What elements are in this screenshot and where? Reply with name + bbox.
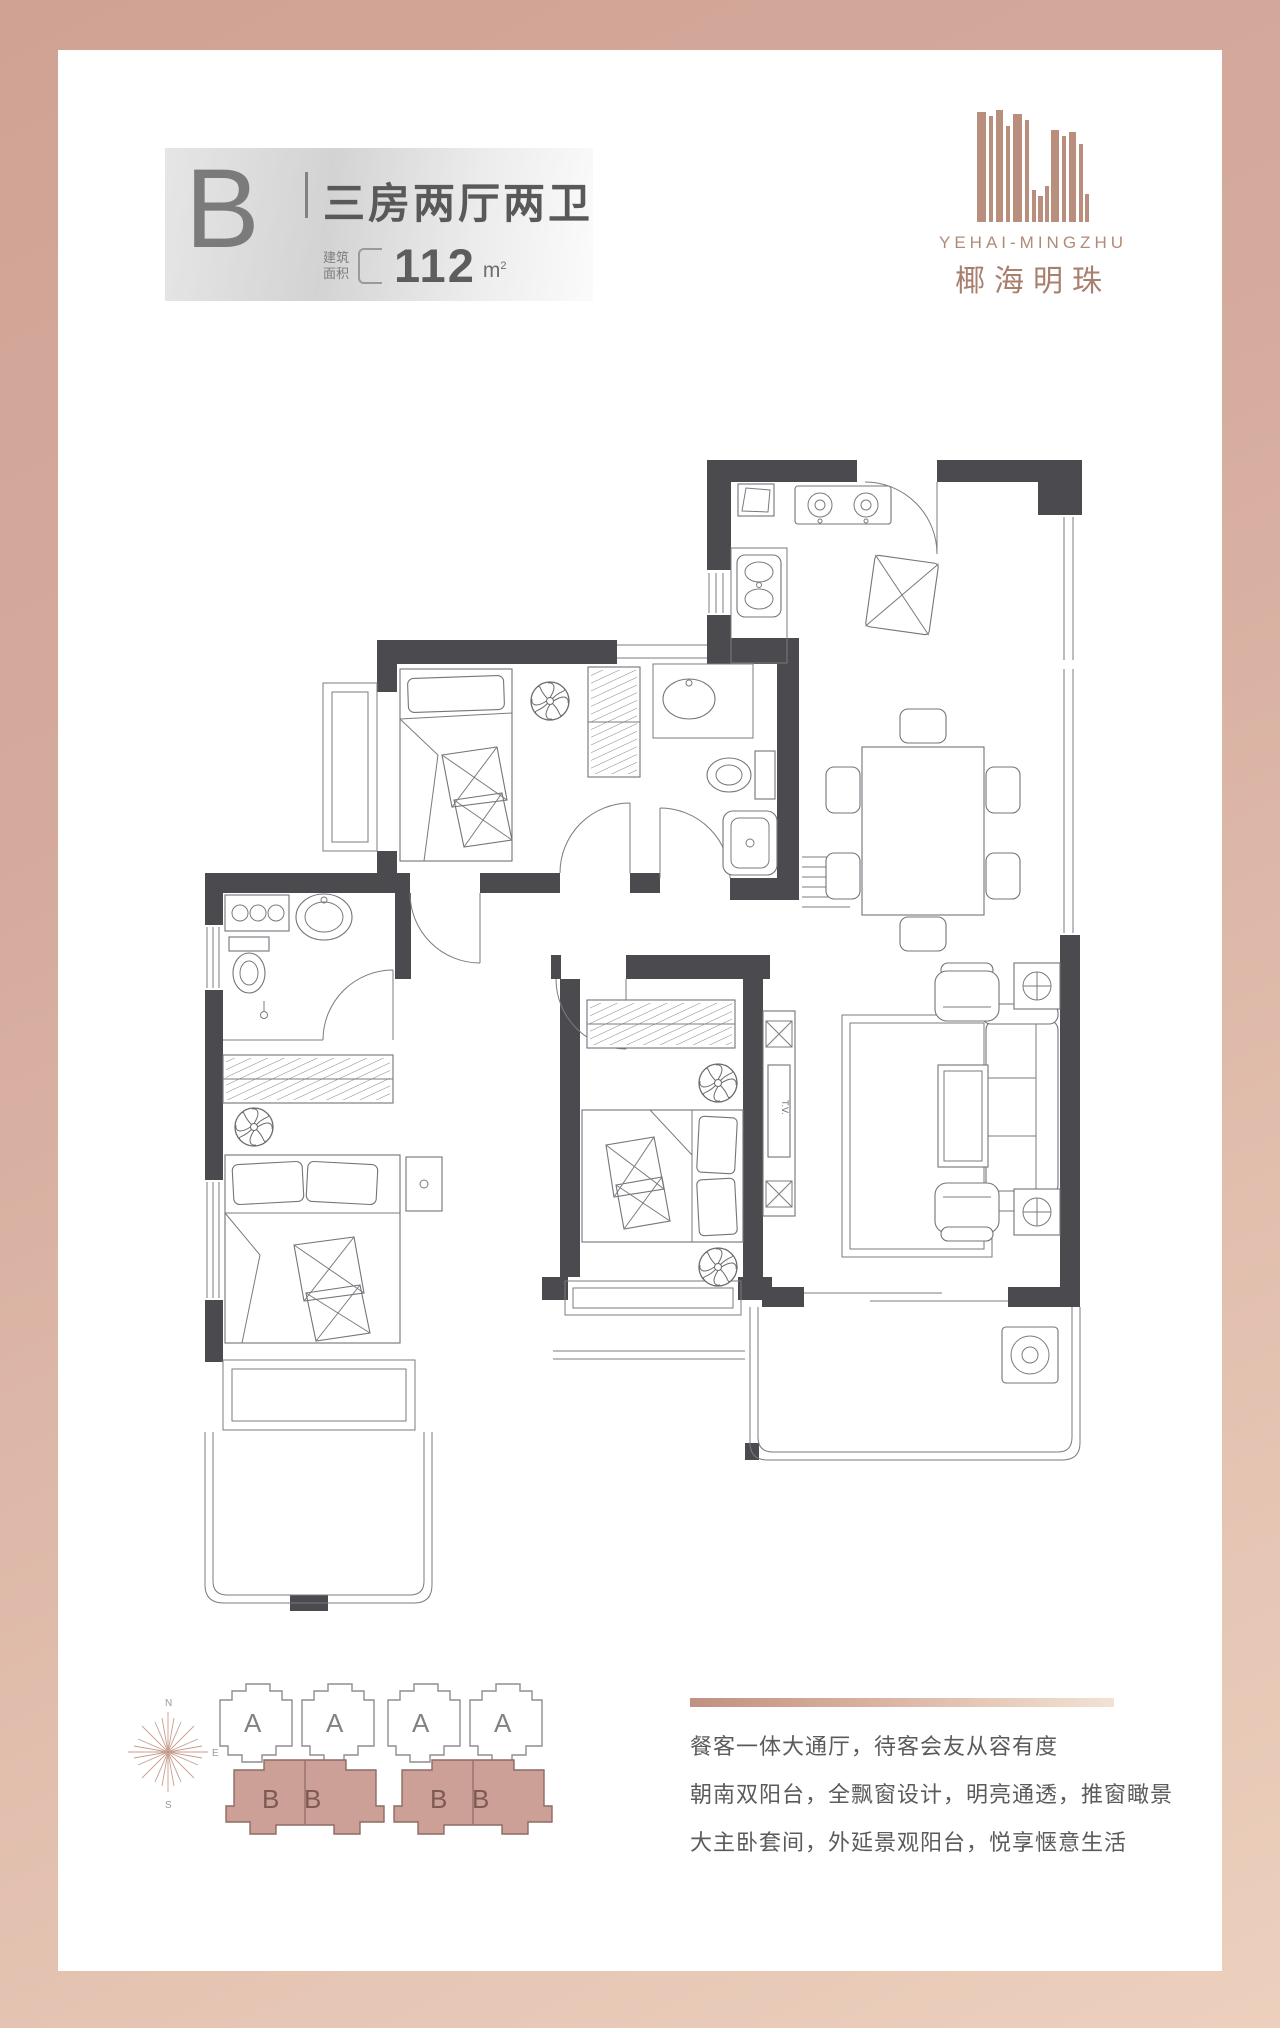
brand-name-cn: 椰海明珠 — [918, 256, 1148, 300]
area-unit-m: m — [483, 259, 501, 282]
stove — [795, 486, 891, 524]
area-unit-sup: 2 — [500, 260, 506, 272]
compass-n: N — [165, 1698, 172, 1709]
description-line: 朝南双阳台，全飘窗设计，明亮通透，推窗瞰景 — [690, 1771, 1170, 1819]
dining-chair — [900, 709, 946, 743]
unit-a-label: A — [412, 1708, 430, 1738]
building-cluster-1: A A B B — [220, 1684, 384, 1834]
toilet — [229, 937, 269, 951]
master-bathroom — [225, 894, 352, 1019]
balcony-washer — [1002, 1327, 1058, 1383]
bathroom-2 — [653, 664, 777, 875]
toilet — [755, 751, 775, 799]
side-table-lamp — [1014, 1189, 1060, 1235]
coffee-table — [938, 1065, 988, 1167]
unit-a-label: A — [326, 1708, 344, 1738]
master-wardrobe — [223, 1055, 393, 1103]
description-line: 餐客一体大通厅，待客会友从容有度 — [690, 1723, 1170, 1771]
dining-chair — [986, 853, 1020, 899]
unit-a-label: A — [244, 1708, 262, 1738]
compass-e: E — [212, 1748, 219, 1759]
unit-badge: B 三房两厅两卫 建筑 面积 112 m2 — [165, 148, 593, 301]
unit-a-label: A — [494, 1708, 512, 1738]
dining-chair — [826, 767, 860, 813]
unit-b-label: B — [430, 1784, 447, 1814]
area-label: 建筑 面积 — [323, 250, 349, 282]
description-block: 餐客一体大通厅，待客会友从容有度 朝南双阳台，全飘窗设计，明亮通透，推窗瞰景 大… — [690, 1698, 1170, 1867]
dining-table — [862, 747, 984, 915]
dining-area — [826, 709, 1020, 951]
sofa — [982, 1004, 1058, 1211]
badge-divider — [305, 172, 308, 218]
side-table-lamp — [1014, 963, 1060, 1009]
dining-chair — [986, 767, 1020, 813]
unit-b-label: B — [472, 1784, 489, 1814]
bedroom-2 — [400, 667, 640, 861]
living-room: T.V. — [763, 963, 1060, 1257]
compass-icon: N E S W — [128, 1698, 219, 1811]
brand-name-en: YEHAI-MINGZHU — [918, 233, 1148, 253]
building-cluster-2: A A B B — [388, 1684, 552, 1834]
floor-plan: T.V. — [202, 455, 1082, 1685]
brand-logo: YEHAI-MINGZHU 椰海明珠 — [918, 104, 1148, 300]
tv-label: T.V. — [780, 1100, 790, 1115]
plan-doors — [223, 482, 937, 1049]
kitchen-sink — [737, 555, 781, 617]
dining-chair — [826, 853, 860, 899]
compass-s: S — [165, 1800, 172, 1811]
armchair — [935, 963, 999, 1021]
area-label-line2: 面积 — [323, 266, 349, 282]
area-row: 建筑 面积 112 m2 — [323, 238, 506, 293]
unit-letter: B — [185, 142, 260, 276]
master-bedroom — [225, 1108, 442, 1343]
unit-b-label: B — [262, 1784, 279, 1814]
armchair — [935, 1183, 999, 1241]
bath-counter — [225, 895, 289, 931]
bedroom-3 — [582, 1000, 743, 1286]
description-lines: 餐客一体大通厅，待客会友从容有度 朝南双阳台，全飘窗设计，明亮通透，推窗瞰景 大… — [690, 1723, 1170, 1867]
area-label-line1: 建筑 — [323, 250, 349, 266]
description-divider — [690, 1698, 1114, 1707]
dining-chair — [900, 917, 946, 951]
unit-b-label: B — [304, 1784, 321, 1814]
building-bars-icon — [977, 104, 1089, 224]
description-line: 大主卧套间，外延景观阳台，悦享惬意生活 — [690, 1819, 1170, 1867]
key-plan: N E S W A A B B A A B — [128, 1672, 558, 1842]
area-unit: m2 — [483, 259, 507, 283]
washbasin — [296, 894, 352, 940]
bedside-cabinet — [406, 1157, 442, 1211]
area-value: 112 — [394, 238, 476, 293]
fridge — [865, 555, 938, 635]
poster-card: B 三房两厅两卫 建筑 面积 112 m2 YEHAI-MINGZHU 椰海明珠 — [58, 50, 1222, 1971]
area-bracket-icon — [358, 248, 382, 284]
floorplan-poster: { "header": { "unit_label": "B", "unit_t… — [0, 0, 1280, 2028]
kitchen — [731, 484, 939, 663]
unit-title: 三房两厅两卫 — [323, 170, 593, 231]
